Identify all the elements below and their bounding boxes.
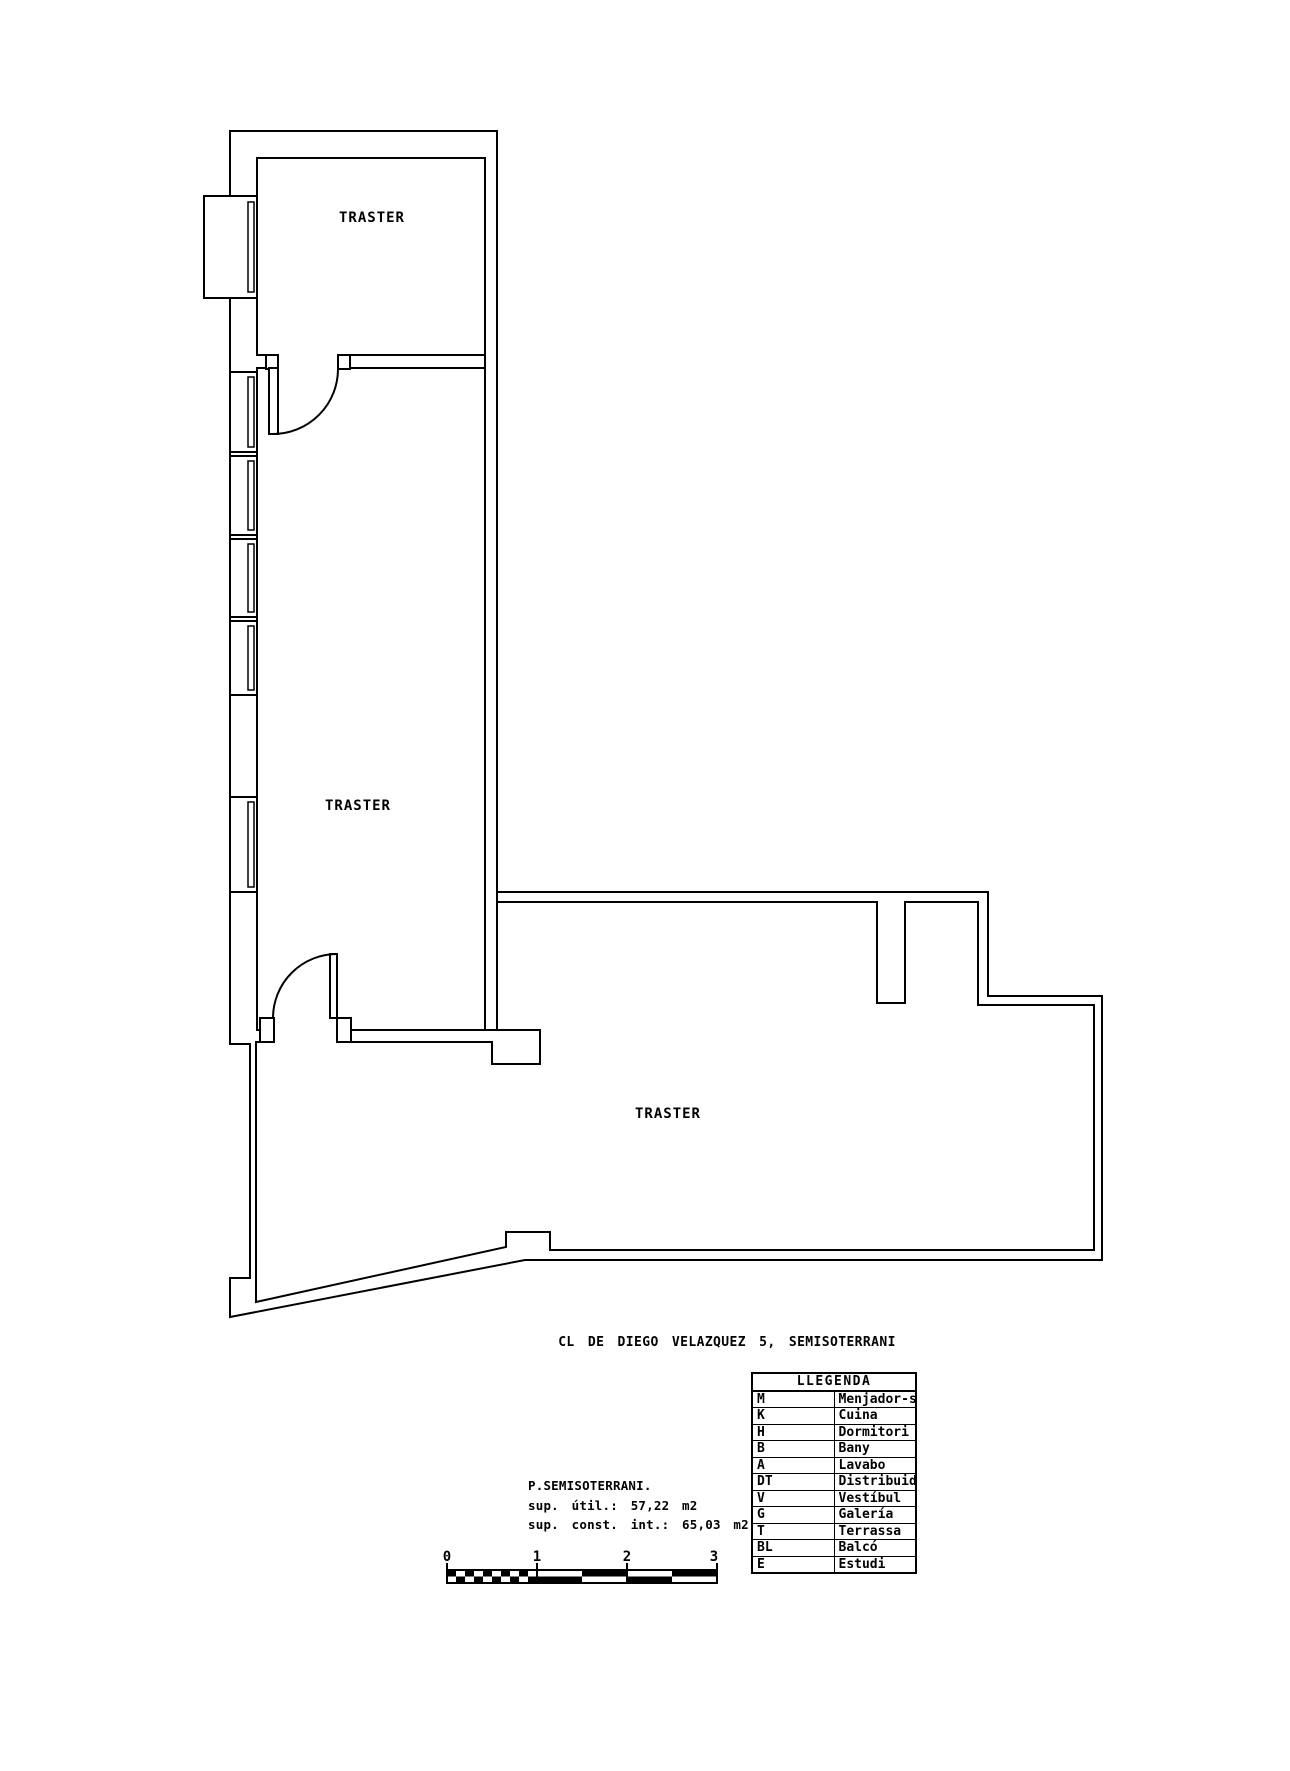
window-5-glazing: [248, 626, 254, 690]
door1-right-jamb: [338, 355, 350, 369]
legend-header-row: LLEGENDA: [752, 1373, 916, 1391]
legend-name: Dormitori: [834, 1424, 916, 1441]
door-room1-room2: [266, 355, 350, 434]
legend-row: T Terrassa: [752, 1523, 916, 1540]
legend-name: Estudi: [834, 1556, 916, 1573]
door1-swing-arc: [273, 368, 338, 434]
legend-header: LLEGENDA: [752, 1373, 916, 1391]
legend-name: Lavabo: [834, 1457, 916, 1474]
legend-code: M: [752, 1391, 834, 1408]
legend-name: Terrassa: [834, 1523, 916, 1540]
door1-left-jamb: [266, 355, 278, 369]
scale-label-0: 0: [443, 1549, 451, 1565]
door2-leaf: [330, 954, 337, 1018]
outer-boundary: [230, 131, 1102, 1317]
legend-code: E: [752, 1556, 834, 1573]
legend-row: BL Balcó: [752, 1540, 916, 1557]
legend-code: K: [752, 1408, 834, 1425]
legend-name: Balcó: [834, 1540, 916, 1557]
plan-title: CL DE DIEGO VELAZQUEZ 5, SEMISOTERRANI: [558, 1335, 896, 1350]
scale-label-3: 3: [710, 1549, 718, 1565]
room-label-traster-1: TRASTER: [339, 210, 405, 226]
legend-row: M Menjador-sala: [752, 1391, 916, 1408]
room-labels: TRASTER TRASTER TRASTER: [325, 210, 701, 1122]
door2-left-jamb: [260, 1018, 274, 1042]
floorplan-page: TRASTER TRASTER TRASTER CL DE DIEGO VELA…: [0, 0, 1290, 1771]
legend-code: A: [752, 1457, 834, 1474]
legend-name: Galería: [834, 1507, 916, 1524]
legend-name: Cuina: [834, 1408, 916, 1425]
window-3-glazing: [248, 461, 254, 530]
window-1-glazing: [248, 202, 254, 292]
door1-leaf: [269, 368, 278, 434]
useful-area-text: sup. útil.: 57,22 m2: [528, 1498, 698, 1513]
window-6-glazing: [248, 802, 254, 887]
legend-row: A Lavabo: [752, 1457, 916, 1474]
legend-code: DT: [752, 1474, 834, 1491]
wall-notch: [492, 1030, 540, 1064]
door-room2-room3: [260, 954, 351, 1042]
legend-code: BL: [752, 1540, 834, 1557]
room-label-traster-3: TRASTER: [635, 1106, 701, 1122]
legend-code: B: [752, 1441, 834, 1458]
legend-row: G Galería: [752, 1507, 916, 1524]
scale-label-2: 2: [623, 1549, 631, 1565]
room1-walls: [257, 158, 485, 355]
legend-code: T: [752, 1523, 834, 1540]
legend-name: Vestíbul: [834, 1490, 916, 1507]
legend-row: DT Distribuidor: [752, 1474, 916, 1491]
window-2-glazing: [248, 377, 254, 447]
scale-bar: 0 1 2 3: [443, 1549, 718, 1583]
window-4-glazing: [248, 544, 254, 612]
scale-label-1: 1: [533, 1549, 541, 1565]
door2-swing-arc: [273, 954, 337, 1018]
legend-code: V: [752, 1490, 834, 1507]
floor-plan-drawing: TRASTER TRASTER TRASTER CL DE DIEGO VELA…: [0, 0, 1290, 1771]
legend-name: Bany: [834, 1441, 916, 1458]
legend-row: H Dormitori: [752, 1424, 916, 1441]
floor-name-text: P.SEMISOTERRANI.: [528, 1478, 652, 1493]
lower-room-inner-boundary: [256, 902, 1094, 1302]
legend-name: Menjador-sala: [834, 1391, 916, 1408]
legend-code: G: [752, 1507, 834, 1524]
legend-code: H: [752, 1424, 834, 1441]
legend-row: E Estudi: [752, 1556, 916, 1573]
legend-table: LLEGENDA M Menjador-sala K Cuina H Dormi…: [751, 1372, 917, 1574]
built-area-text: sup. const. int.: 65,03 m2: [528, 1517, 749, 1532]
area-info: P.SEMISOTERRANI. sup. útil.: 57,22 m2 su…: [528, 1478, 749, 1532]
legend-row: K Cuina: [752, 1408, 916, 1425]
legend-row: B Bany: [752, 1441, 916, 1458]
interior-walls: [256, 158, 1094, 1302]
legend-name: Distribuidor: [834, 1474, 916, 1491]
outer-walls: [230, 131, 1102, 1317]
room-label-traster-2: TRASTER: [325, 798, 391, 814]
door2-right-jamb: [337, 1018, 351, 1042]
legend-row: V Vestíbul: [752, 1490, 916, 1507]
